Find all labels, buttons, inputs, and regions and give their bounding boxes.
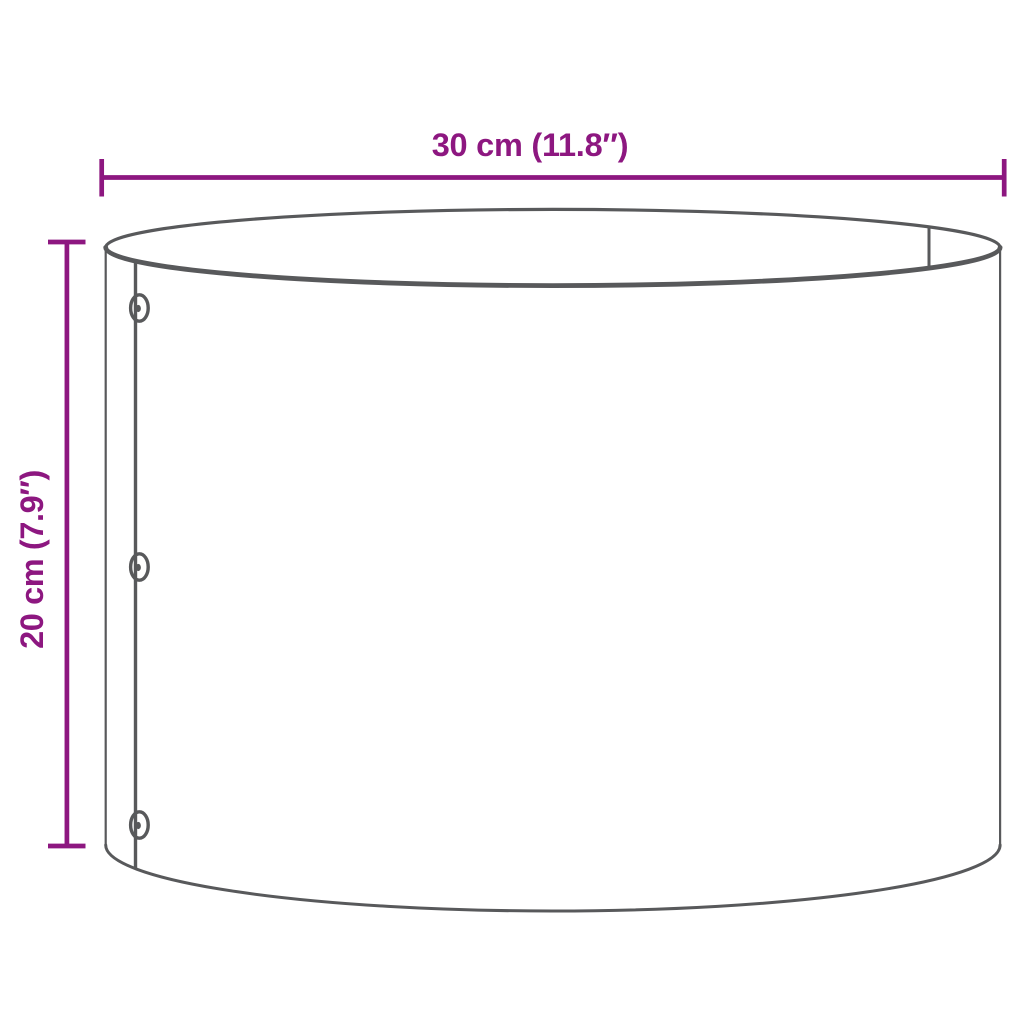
svg-text:20 cm (7.9″): 20 cm (7.9″) [14, 470, 50, 649]
svg-text:30 cm (11.8″): 30 cm (11.8″) [432, 127, 629, 163]
